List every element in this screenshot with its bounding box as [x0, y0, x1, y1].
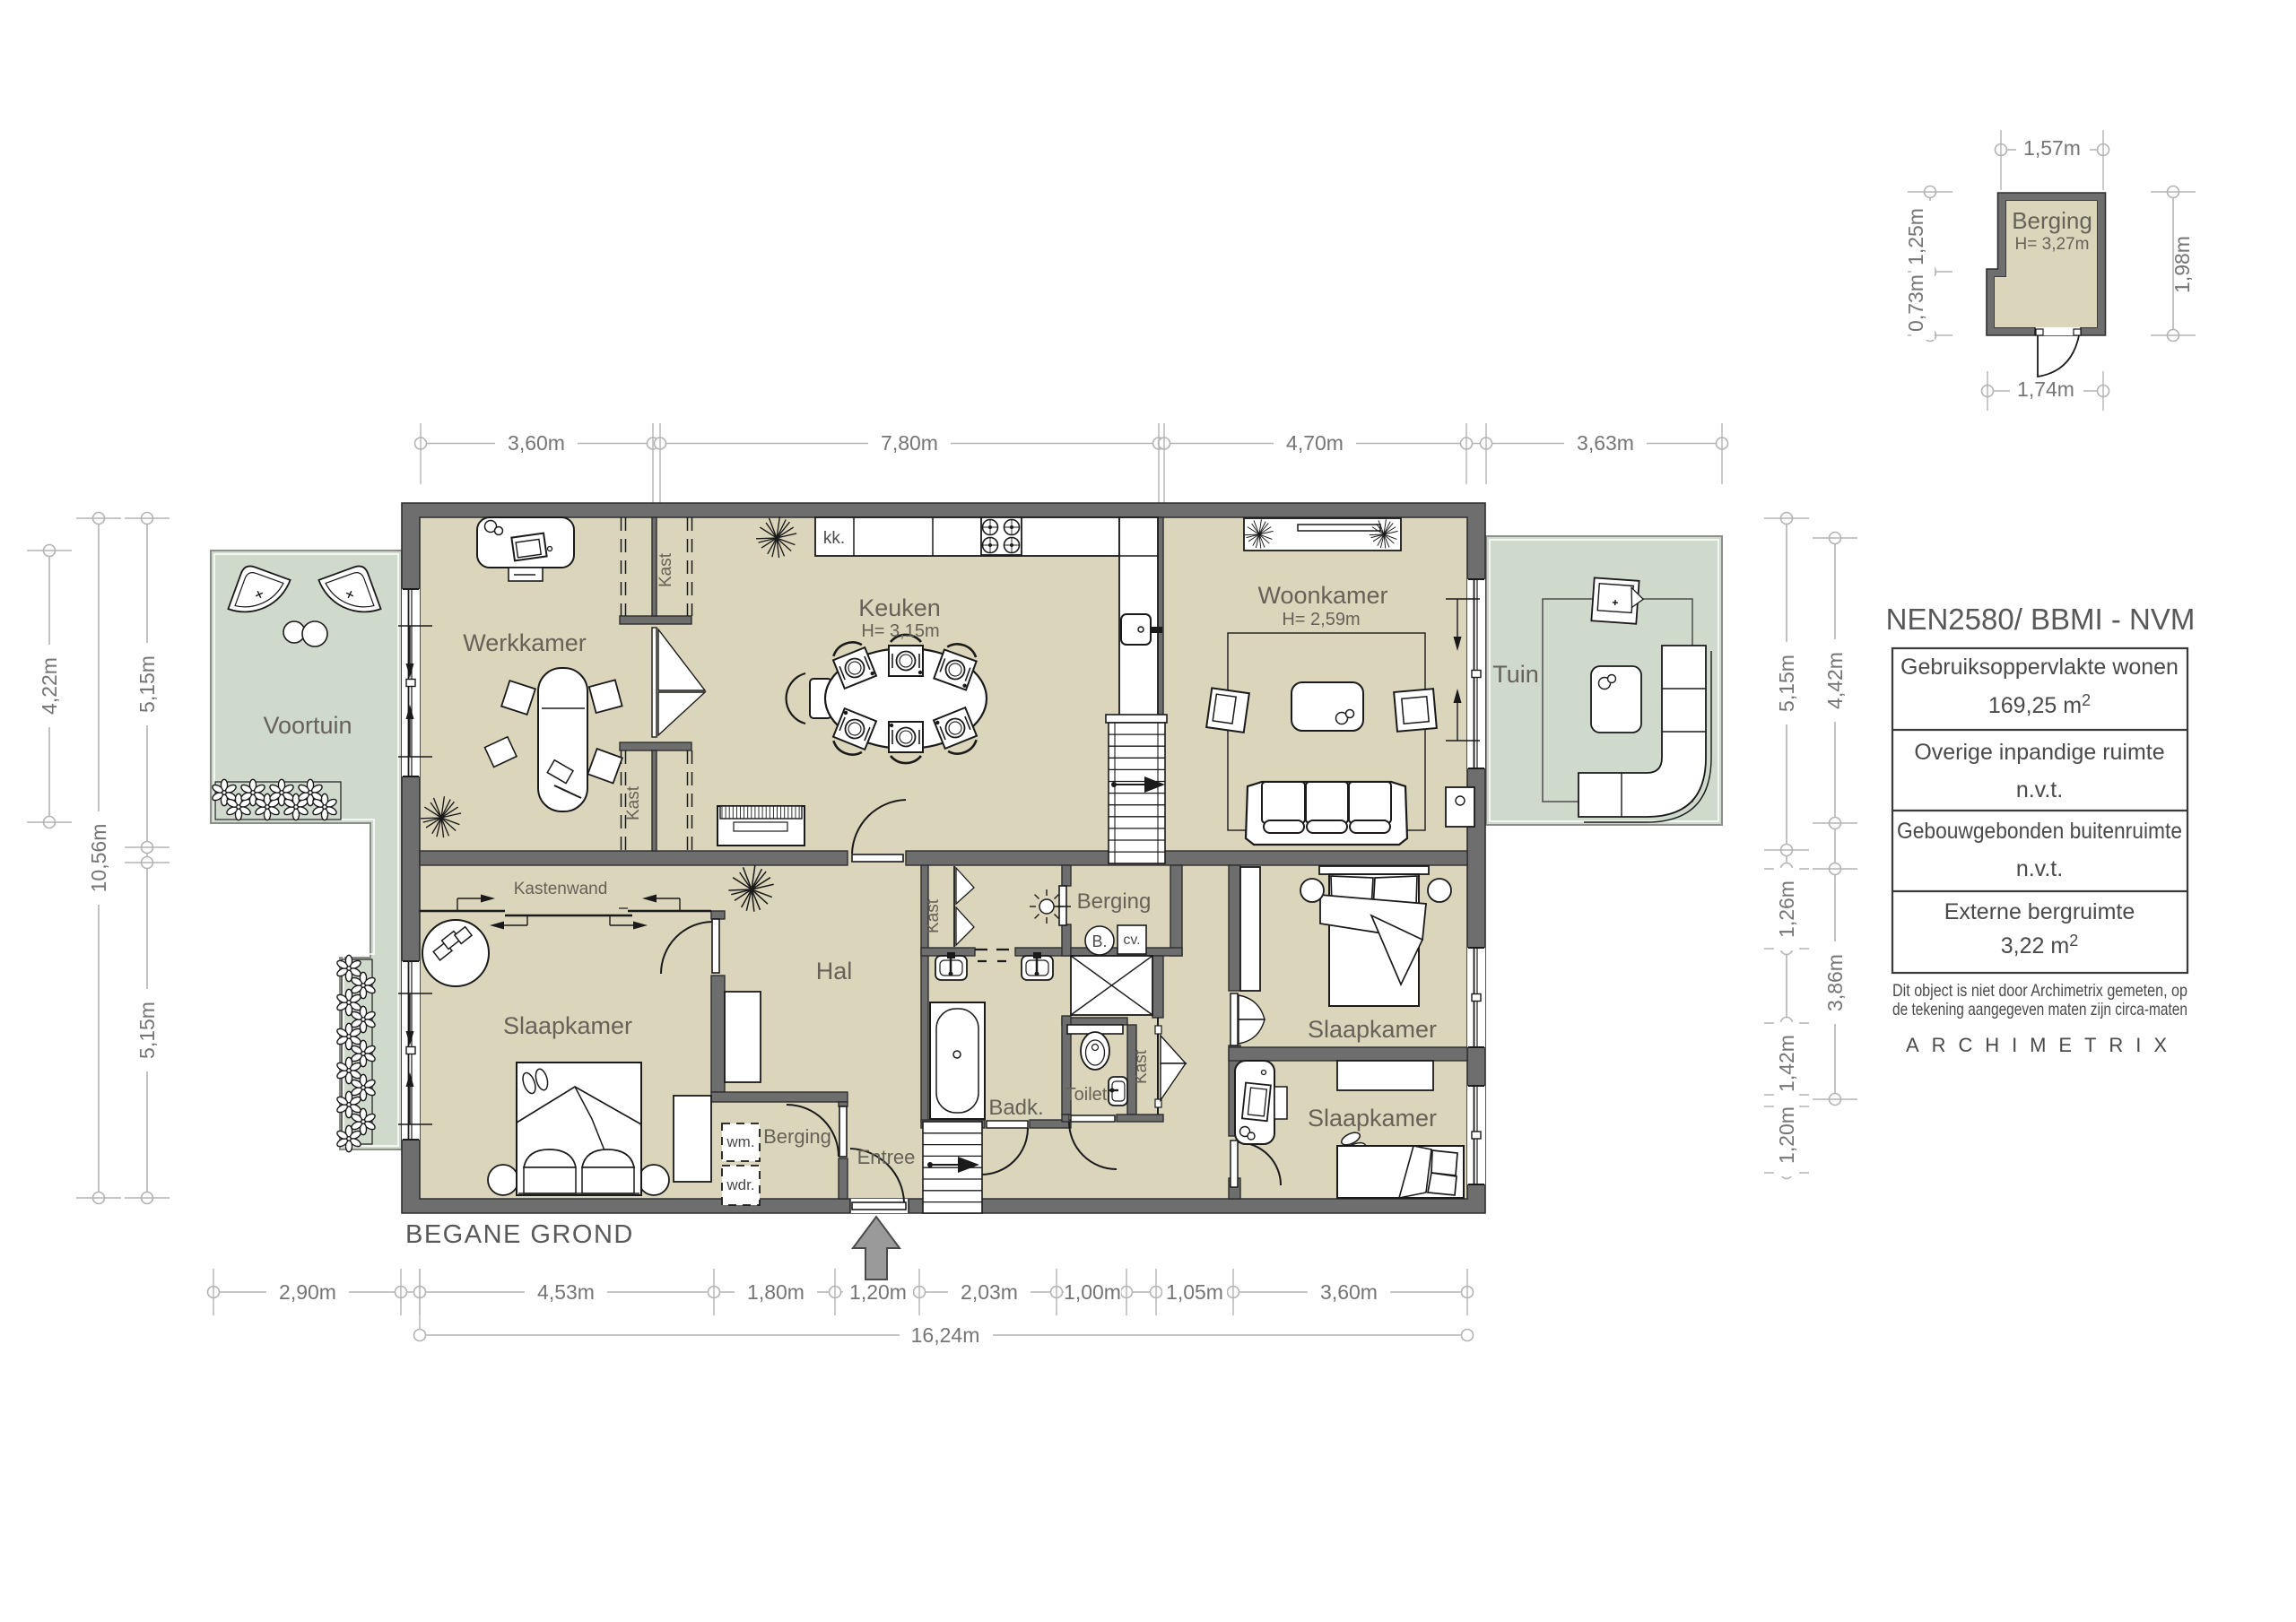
svg-text:n.v.t.: n.v.t. — [2016, 856, 2063, 881]
svg-text:Overige inpandige ruimte: Overige inpandige ruimte — [1914, 740, 2164, 765]
svg-text:5,15m: 5,15m — [135, 1002, 159, 1059]
svg-text:2,03m: 2,03m — [961, 1280, 1018, 1304]
svg-text:Slaapkamer: Slaapkamer — [1308, 1016, 1437, 1043]
svg-text:Woonkamer: Woonkamer — [1257, 582, 1387, 609]
svg-text:Kast: Kast — [657, 552, 675, 587]
svg-text:Gebouwgebonden buitenruimte: Gebouwgebonden buitenruimte — [1897, 819, 2182, 844]
svg-text:1,98m: 1,98m — [2170, 236, 2194, 293]
svg-text:Slaapkamer: Slaapkamer — [1308, 1105, 1437, 1132]
svg-text:Werkkamer: Werkkamer — [463, 629, 587, 656]
svg-text:1,20m: 1,20m — [1775, 1106, 1798, 1164]
svg-text:Kast: Kast — [1132, 1049, 1151, 1084]
svg-text:1,26m: 1,26m — [1775, 880, 1798, 938]
svg-text:Keuken: Keuken — [858, 594, 941, 621]
svg-text:NEN2580/ BBMI - NVM: NEN2580/ BBMI - NVM — [1886, 603, 2196, 636]
svg-text:16,24m: 16,24m — [911, 1323, 980, 1347]
svg-text:BEGANE GROND: BEGANE GROND — [405, 1220, 634, 1249]
svg-text:de tekening aangegeven maten z: de tekening aangegeven maten zijn circa-… — [1892, 1000, 2187, 1019]
svg-text:Berging: Berging — [1077, 889, 1152, 914]
svg-text:4,53m: 4,53m — [537, 1280, 595, 1304]
svg-text:Entree: Entree — [857, 1146, 916, 1168]
svg-text:4,42m: 4,42m — [1823, 652, 1847, 709]
svg-text:1,00m: 1,00m — [1064, 1280, 1121, 1304]
svg-text:B.: B. — [1091, 932, 1107, 950]
svg-text:3,60m: 3,60m — [508, 431, 565, 455]
svg-text:Voortuin: Voortuin — [263, 712, 352, 739]
svg-text:H= 3,27m: H= 3,27m — [2015, 235, 2090, 254]
svg-text:3,86m: 3,86m — [1823, 954, 1847, 1011]
svg-text:3,22 m2: 3,22 m2 — [2001, 932, 2078, 958]
svg-text:4,22m: 4,22m — [38, 657, 61, 715]
svg-text:5,15m: 5,15m — [1775, 655, 1798, 712]
svg-text:kk.: kk. — [823, 529, 845, 548]
svg-text:wdr.: wdr. — [726, 1176, 754, 1193]
svg-text:H= 3,15m: H= 3,15m — [861, 621, 939, 641]
svg-text:1,25m: 1,25m — [1904, 208, 1927, 265]
svg-text:10,56m: 10,56m — [87, 824, 110, 893]
svg-text:Dit object is niet door Archim: Dit object is niet door Archimetrix geme… — [1892, 981, 2187, 1001]
svg-text:Toilet: Toilet — [1065, 1085, 1108, 1105]
svg-text:169,25 m2: 169,25 m2 — [1988, 691, 2091, 718]
svg-text:7,80m: 7,80m — [881, 431, 938, 455]
svg-text:2,90m: 2,90m — [279, 1280, 336, 1304]
svg-text:Gebruiksoppervlakte wonen: Gebruiksoppervlakte wonen — [1900, 655, 2179, 680]
svg-text:1,80m: 1,80m — [747, 1280, 804, 1304]
svg-text:1,74m: 1,74m — [2017, 377, 2074, 401]
svg-text:Berging: Berging — [763, 1125, 831, 1148]
svg-text:5,15m: 5,15m — [135, 655, 159, 713]
svg-text:Kast: Kast — [924, 898, 943, 933]
svg-text:1,42m: 1,42m — [1775, 1035, 1798, 1092]
svg-text:Tuin: Tuin — [1492, 661, 1539, 688]
svg-text:Externe bergruimte: Externe bergruimte — [1944, 899, 2135, 924]
svg-text:Berging: Berging — [2012, 207, 2092, 234]
svg-text:cv.: cv. — [1123, 932, 1140, 948]
svg-text:1,05m: 1,05m — [1166, 1280, 1223, 1304]
svg-text:H= 2,59m: H= 2,59m — [1282, 610, 1360, 629]
svg-text:Kast: Kast — [624, 785, 643, 820]
svg-text:Hal: Hal — [816, 958, 853, 984]
svg-text:4,70m: 4,70m — [1286, 431, 1344, 455]
svg-text:1,57m: 1,57m — [2023, 136, 2081, 160]
svg-text:ARCHIMETRIX: ARCHIMETRIX — [1906, 1034, 2179, 1056]
svg-text:3,60m: 3,60m — [1320, 1280, 1378, 1304]
svg-text:n.v.t.: n.v.t. — [2016, 777, 2063, 802]
svg-text:1,20m: 1,20m — [849, 1280, 907, 1304]
svg-text:Slaapkamer: Slaapkamer — [503, 1012, 632, 1039]
svg-text:0,73m: 0,73m — [1904, 274, 1927, 332]
svg-text:Kastenwand: Kastenwand — [514, 880, 608, 898]
svg-text:wm.: wm. — [726, 1133, 754, 1150]
svg-text:3,63m: 3,63m — [1577, 431, 1634, 455]
svg-text:Badk.: Badk. — [988, 1096, 1043, 1120]
